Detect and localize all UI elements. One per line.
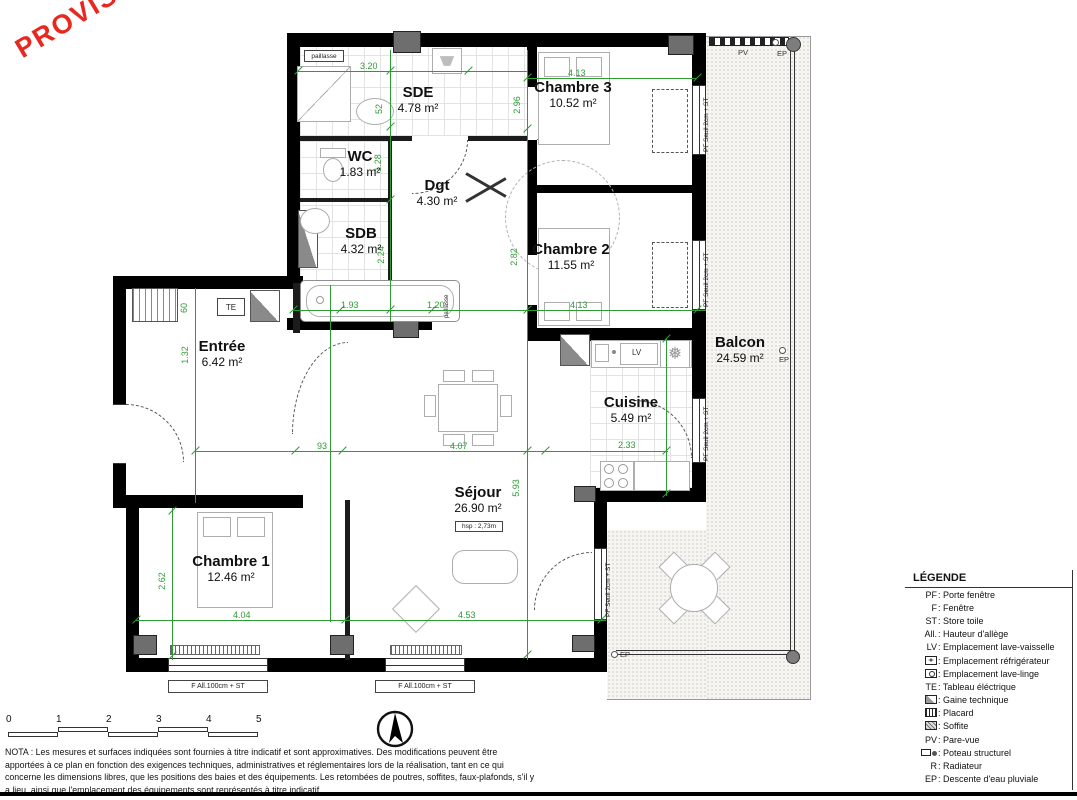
- entrance-door-gap: [113, 404, 126, 464]
- sejour-gaine-technique: [560, 334, 590, 366]
- partition-sde-bottom-a: [300, 136, 412, 141]
- closet-icon: [925, 708, 937, 717]
- room-label-balcon: Balcon24.59 m²: [695, 334, 785, 366]
- legend-item-soffite: : Soffite: [905, 720, 1073, 733]
- balcony-railing-right: [790, 50, 791, 656]
- dim-4-07: 4.07: [450, 441, 468, 451]
- dining-chair-2: [472, 370, 494, 382]
- dim-line-h5: [136, 620, 606, 621]
- soffit-icon: [925, 721, 937, 730]
- pf-swing-chambre2: [652, 242, 688, 308]
- legend-item-ep: EP: Descente d'eau pluviale: [905, 773, 1073, 786]
- kitchen-cabinet: [634, 461, 690, 491]
- room-label-cuisine: Cuisine5.49 m²: [591, 394, 671, 426]
- balcony-railing-right2: [794, 50, 795, 656]
- balcony-table: [670, 564, 718, 612]
- te-electrical-panel: TE: [217, 298, 245, 316]
- dim-line-v2: [527, 50, 528, 660]
- bathtub-drain: [316, 296, 324, 304]
- nota-text: NOTA : Les mesures et surfaces indiquées…: [5, 746, 535, 796]
- dim-1-20: 1.20: [427, 300, 445, 310]
- entree-gaine-technique: [250, 290, 280, 322]
- paillasse-box: paillasse: [304, 50, 344, 62]
- dim-line-h3: [293, 310, 706, 311]
- pillow-c1-1: [203, 517, 231, 537]
- legend-item-te: TE: Tableau éléctrique: [905, 680, 1073, 693]
- legend-item-all: All.: Hauteur d'allège: [905, 628, 1073, 641]
- legend-title: LÉGENDE: [905, 570, 1073, 588]
- wall-right-2: [692, 155, 706, 240]
- provisoire-stamp: PROVISOIRE: [10, 0, 187, 65]
- dgt-double-door-leaf2: [465, 177, 506, 203]
- rug-diamond: [392, 585, 440, 633]
- dim-4-04: 4.04: [233, 610, 251, 620]
- page-bottom-rule: [0, 792, 1077, 796]
- scale-bar: 0 1 2 3 4 5: [8, 714, 278, 744]
- stove-burner-4: [618, 478, 628, 488]
- room-label-sdb: SDB4.32 m²: [326, 225, 396, 257]
- wall-right-4: [692, 463, 706, 502]
- washing-machine-icon: [925, 669, 937, 678]
- dining-chair-1: [443, 370, 465, 382]
- stove-burner-3: [604, 478, 614, 488]
- legend-item-r: R: Radiateur: [905, 759, 1073, 772]
- refrigerator-icon: [925, 656, 937, 665]
- door-arc-sejour-balcony: [534, 552, 592, 610]
- legend-item-pf: PF: Porte fenêtre: [905, 588, 1073, 601]
- wall-entree-left-b: [113, 462, 126, 508]
- ep-downpipe-bottom: [611, 651, 618, 658]
- pillar-bottom-2: [330, 635, 354, 655]
- legend-item-fridge: : Emplacement réfrigérateur: [905, 654, 1073, 667]
- dining-chair-4: [472, 434, 494, 446]
- room-label-wc: WC1.83 m²: [328, 148, 392, 180]
- legend-right-border: [1072, 570, 1073, 790]
- dim-93: 93: [317, 441, 327, 451]
- legend-item-pv: PV: Pare-vue: [905, 733, 1073, 746]
- pf-swing-chambre3: [652, 89, 688, 153]
- structural-post-icon: [921, 749, 931, 756]
- wall-c1-top: [126, 495, 303, 508]
- dim-line-h4: [195, 451, 668, 452]
- balcony-floor-bottom: [607, 530, 707, 700]
- window-label-sejour: PF Seuil 2cm + ST: [605, 563, 612, 617]
- window-label-chambre2: PF Seuil 2cm + ST: [703, 253, 710, 307]
- window-chambre1: [168, 658, 268, 672]
- dim-line-v4: [330, 285, 331, 622]
- dgt-double-door-leaf1: [465, 172, 506, 198]
- pillar-top-2: [668, 35, 694, 55]
- legend: LÉGENDE PF: Porte fenêtre F: Fenêtre ST:…: [905, 570, 1073, 786]
- legend-item-washer: : Emplacement lave-linge: [905, 667, 1073, 680]
- legend-item-f: F: Fenêtre: [905, 601, 1073, 614]
- north-arrow-icon: [376, 710, 414, 748]
- snowflake-icon: ❅: [668, 344, 682, 363]
- coffee-table: [452, 550, 518, 584]
- pillar-bottom-1: [133, 635, 157, 655]
- technical-duct-icon: [925, 695, 937, 704]
- room-label-sde: SDE4.78 m²: [383, 84, 453, 116]
- legend-item-st: ST: Store toile: [905, 614, 1073, 627]
- pillar-top-1: [393, 31, 421, 53]
- ep-label-bottom: EP: [620, 650, 630, 659]
- window-label-kitchen: PF Seuil 2cm + ST: [703, 407, 710, 461]
- ep-downpipe-top: [772, 39, 779, 46]
- room-label-chambre2: Chambre 211.55 m²: [511, 241, 631, 273]
- floor-plan-page: PROVISOIRE PV EP EP EP: [0, 0, 1077, 800]
- entree-placard: [132, 288, 178, 322]
- paillasse-vertical-label: paillasse: [444, 295, 450, 318]
- pillar-bottom-3: [572, 635, 595, 652]
- room-label-chambre3: Chambre 310.52 m²: [513, 79, 633, 111]
- room-label-dgt: Dgt4.30 m²: [405, 177, 469, 209]
- kitchen-faucet: [612, 350, 616, 354]
- wall-entree-left-a: [113, 276, 126, 404]
- legend-item-poteau: : Poteau structurel: [905, 746, 1073, 759]
- window-sejour: [385, 658, 465, 672]
- balcony-edge-bottom: [607, 699, 811, 700]
- dining-chair-5: [424, 395, 436, 417]
- door-arc-hall: [292, 342, 348, 434]
- window-label-sejour-bottom: F All.100cm + ST: [375, 680, 475, 693]
- pv-label: PV: [738, 48, 748, 57]
- stove-burner-1: [604, 464, 614, 474]
- balcony-railing-bottom2: [616, 654, 792, 655]
- dim-4-53: 4.53: [458, 610, 476, 620]
- wall-top: [287, 33, 705, 47]
- dim-line-h1: [298, 71, 527, 72]
- railing-post-top: [786, 37, 801, 52]
- window-label-chambre1-bottom: F All.100cm + ST: [168, 680, 268, 693]
- dim-4-13-c2: 4.13: [570, 300, 588, 310]
- shower: [297, 66, 351, 122]
- radiator-chambre1: [170, 645, 260, 655]
- balcony-edge-right: [810, 36, 811, 700]
- fridge: ❅: [660, 340, 690, 368]
- dining-table: [438, 384, 498, 432]
- ep-label-top: EP: [777, 49, 787, 58]
- legend-item-lv: LV: Emplacement lave-vaisselle: [905, 641, 1073, 654]
- balcony-railing-bottom: [616, 650, 792, 651]
- room-label-chambre1: Chambre 112.46 m²: [166, 553, 296, 585]
- radiator-sejour: [390, 645, 462, 655]
- pillow-c3-1: [544, 57, 570, 77]
- room-label-sejour: Séjour26.90 m²: [433, 484, 523, 516]
- dim-1-93: 1.93: [341, 300, 359, 310]
- dim-4-13-c3: 4.13: [568, 68, 586, 78]
- kitchen-sink: [595, 344, 609, 362]
- pillow-c2-1: [544, 302, 570, 321]
- door-arc-entrance: [126, 404, 184, 462]
- room-label-entree: Entrée6.42 m²: [178, 338, 266, 370]
- dim-3-20: 3.20: [360, 61, 378, 71]
- legend-item-gaine: : Gaine technique: [905, 694, 1073, 707]
- stove-burner-2: [618, 464, 628, 474]
- railing-post-bottom: [786, 650, 800, 664]
- partition-sde-bottom-b: [468, 136, 527, 141]
- window-label-chambre3: PF Seuil 2cm + ST: [703, 98, 710, 152]
- dim-2-33: 2.33: [618, 440, 636, 450]
- dim-line-v3: [195, 288, 196, 503]
- legend-item-placard: : Placard: [905, 707, 1073, 720]
- dim-60: 60: [179, 303, 189, 313]
- sejour-ceiling-height: hsp : 2,73m: [455, 521, 503, 532]
- pillow-c1-2: [237, 517, 265, 537]
- dishwasher-label: LV: [632, 348, 641, 357]
- partition-wc-sdb: [300, 198, 388, 202]
- dining-chair-6: [500, 395, 512, 417]
- pillar-kitchen: [574, 486, 596, 502]
